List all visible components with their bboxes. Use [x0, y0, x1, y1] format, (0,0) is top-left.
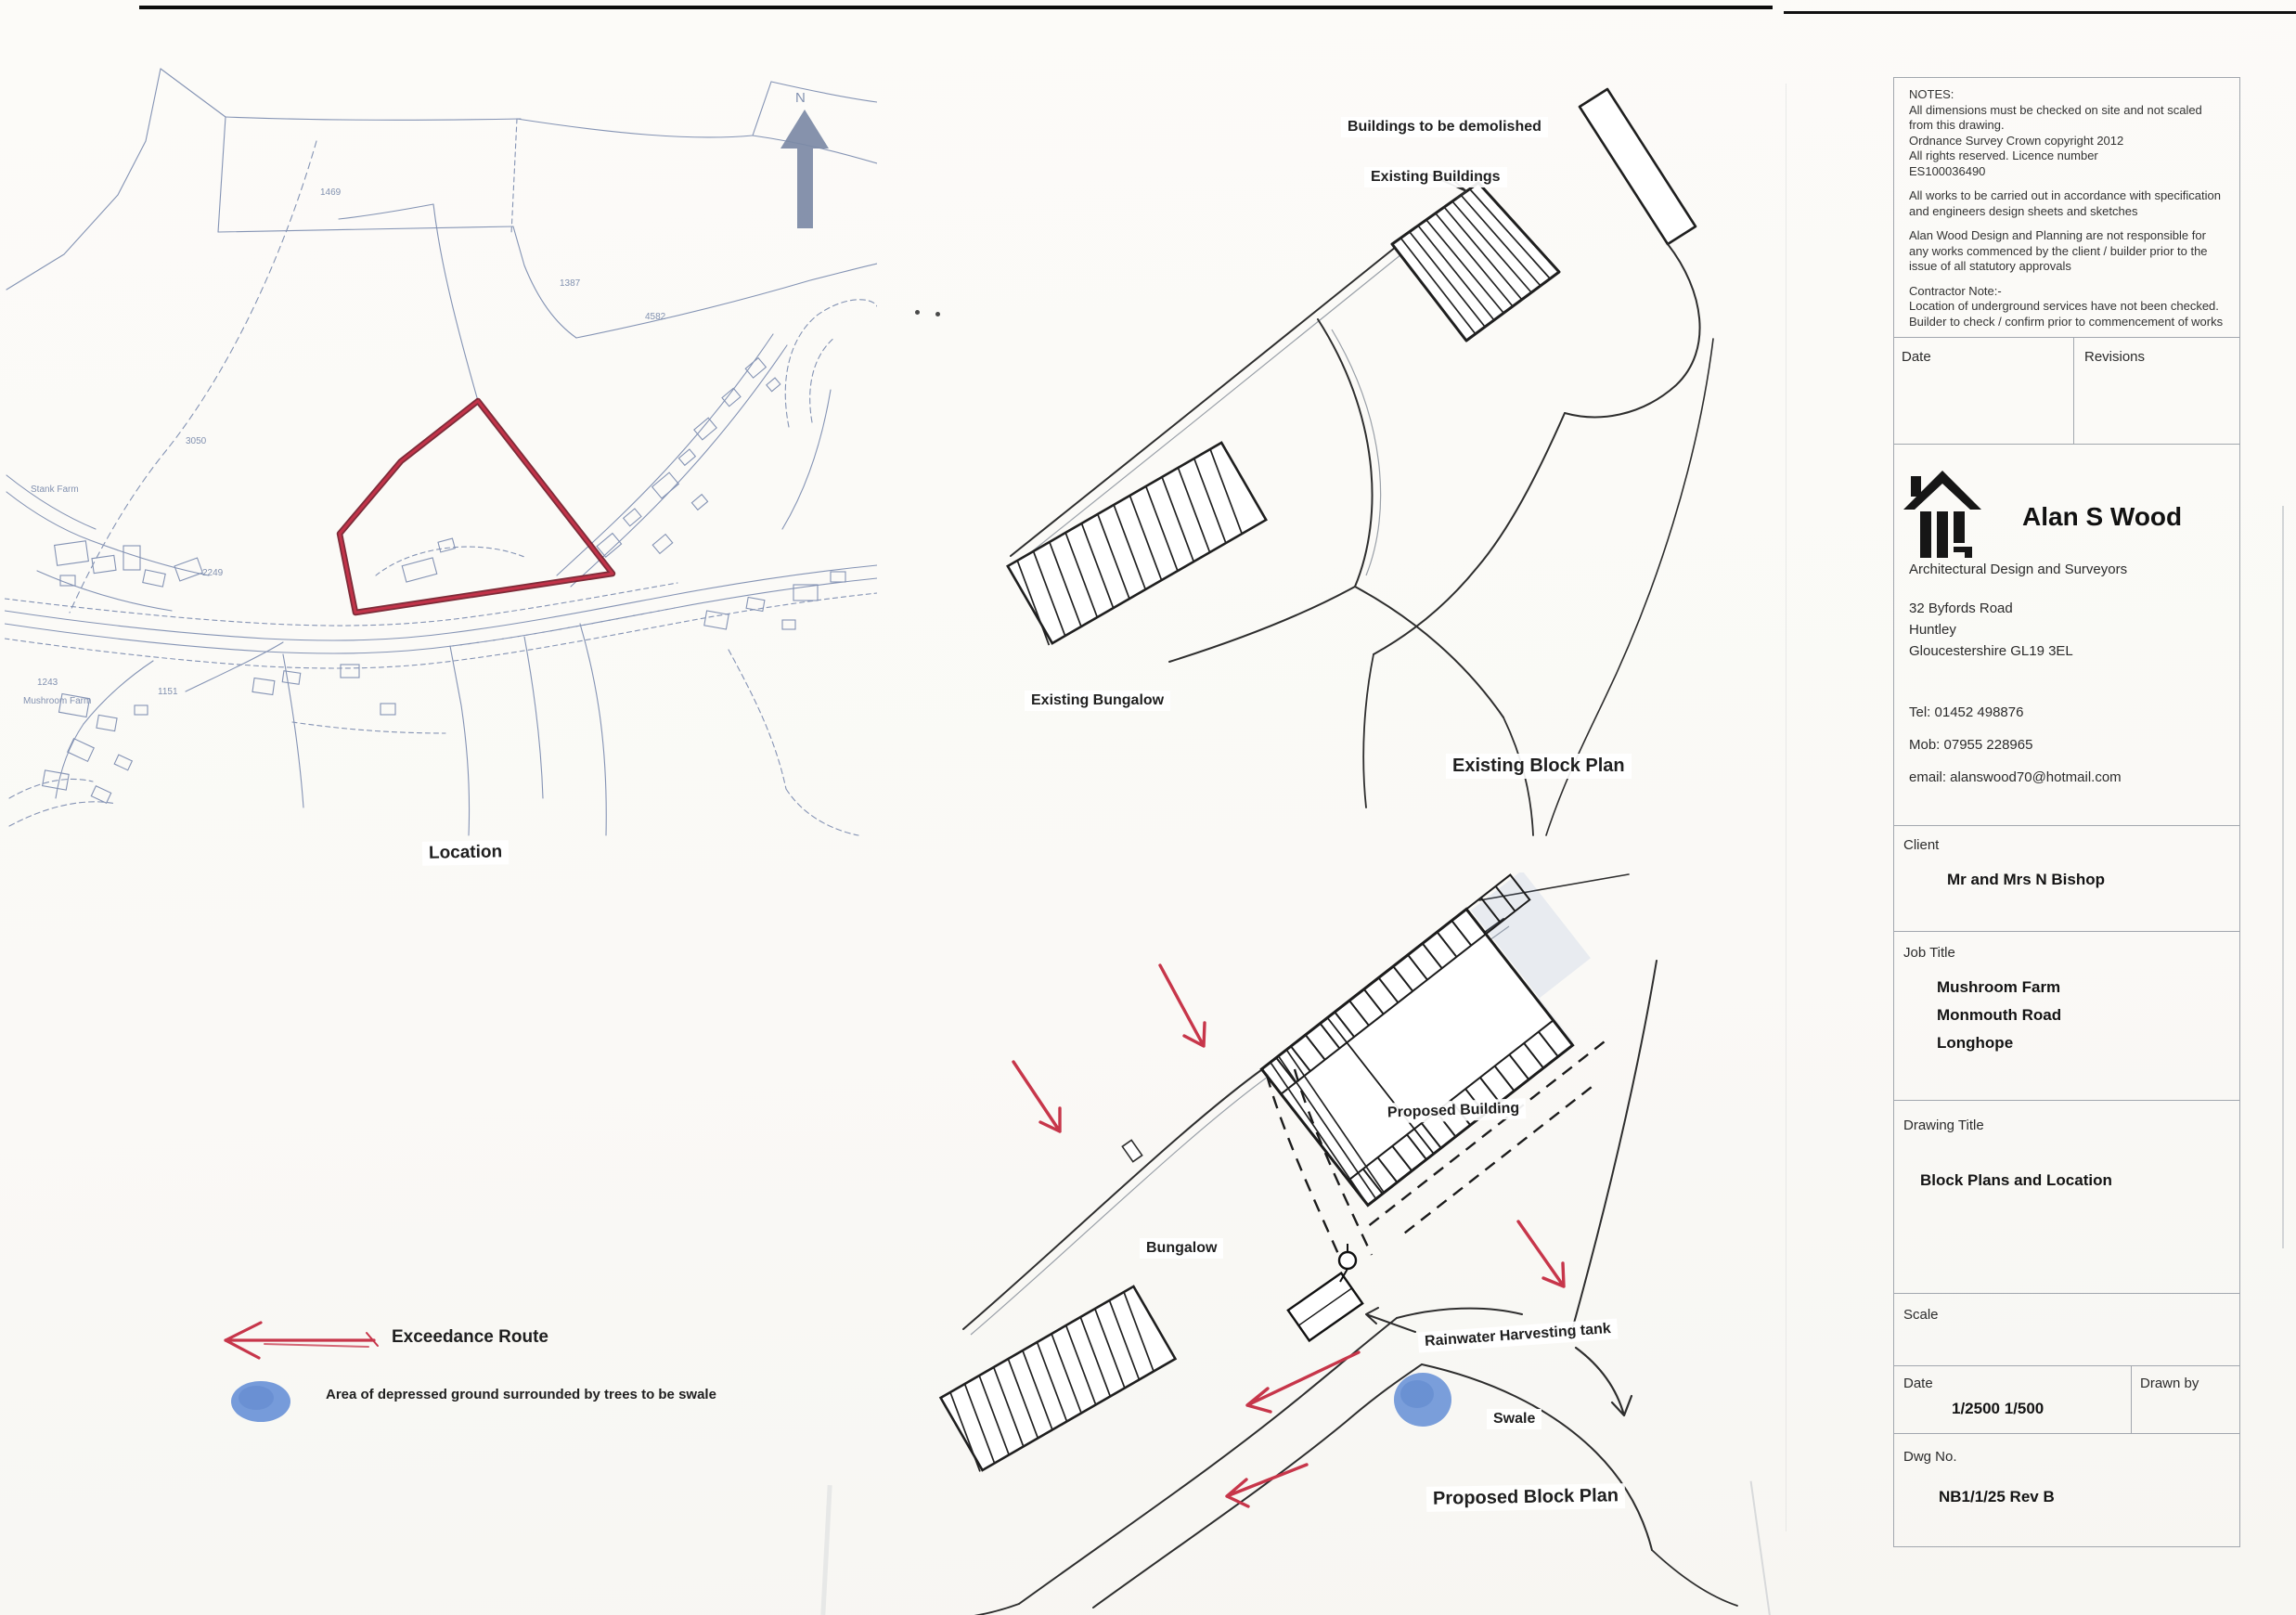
location-map-title: Location [422, 840, 510, 866]
rainwater-tank-shape [1288, 1273, 1362, 1341]
farm-name-label: Stank Farm [31, 484, 79, 495]
parcel-number: 1151 [158, 687, 178, 697]
date-drawn-section: Date 1/2500 1/500 Drawn by [1894, 1365, 2239, 1433]
date-header-label: Date [1902, 349, 1931, 365]
scan-smudge [820, 1485, 832, 1615]
notes-line: ES100036490 [1909, 164, 2225, 180]
existing-buildings-shape [1392, 183, 1559, 341]
parcel-number: 1243 [37, 678, 58, 688]
scan-top-edge-right [1784, 11, 2296, 14]
parcel-number: 1469 [320, 187, 342, 198]
scale-section: Scale [1894, 1293, 2239, 1365]
title-block: NOTES: All dimensions must be checked on… [1893, 77, 2240, 1547]
company-address-line: Huntley [1909, 622, 1956, 638]
drawing-sheet: N 1469 1387 4582 3050 2249 1151 1243 Sta… [0, 0, 2296, 1615]
site-boundary [340, 401, 613, 613]
notes-line: All works to be carried out in accordanc… [1909, 188, 2225, 219]
existing-bungalow-label: Existing Bungalow [1025, 691, 1170, 711]
depressed-ground-icon [228, 1379, 293, 1426]
notes-line: Location of underground services have no… [1909, 299, 2225, 329]
parcel-number: 4582 [645, 312, 666, 322]
map-village-buildings [597, 358, 780, 558]
dwg-no-label: Dwg No. [1903, 1449, 1957, 1465]
exceedance-route-label: Exceedance Route [385, 1325, 555, 1350]
demolish-label: Buildings to be demolished [1341, 117, 1548, 137]
revisions-section: Date Revisions [1894, 337, 2239, 444]
drawing-title-section: Drawing Title Block Plans and Location [1894, 1100, 2239, 1293]
company-address-line: Gloucestershire GL19 3EL [1909, 643, 2073, 659]
client-label: Client [1903, 837, 1939, 853]
notes-line: Alan Wood Design and Planning are not re… [1909, 228, 2225, 275]
flow-arrow [1576, 1348, 1632, 1415]
proposed-plan-title: Proposed Block Plan [1426, 1483, 1626, 1512]
exceedance-arrow-icon [209, 1316, 381, 1370]
company-name: Alan S Wood [2022, 502, 2182, 532]
depressed-ground-label: Area of depressed ground surrounded by t… [319, 1385, 723, 1404]
scale-label: Scale [1903, 1307, 1939, 1323]
company-email: email: alanswood70@hotmail.com [1909, 769, 2122, 785]
farm-name-label: Mushroom Farm [23, 696, 91, 706]
north-label: N [795, 90, 806, 106]
boundary-gate [1122, 1140, 1142, 1161]
proposed-block-plan [909, 872, 1800, 1615]
scan-paper-edge [2282, 506, 2284, 1248]
job-title-line: Mushroom Farm [1937, 978, 2060, 997]
parcel-number: 1387 [560, 278, 581, 289]
location-map: N 1469 1387 4582 3050 2249 1151 1243 Sta… [5, 56, 877, 854]
swale-label: Swale [1487, 1409, 1541, 1429]
company-mob: Mob: 07955 228965 [1909, 737, 2032, 753]
client-value: Mr and Mrs N Bishop [1947, 871, 2105, 889]
company-address-line: 32 Byfords Road [1909, 601, 2013, 616]
job-title-line: Longhope [1937, 1034, 2013, 1053]
company-tagline: Architectural Design and Surveyors [1909, 562, 2127, 577]
demolish-building-shape [1580, 89, 1696, 244]
notes-line: All rights reserved. Licence number [1909, 149, 2225, 164]
parcel-number: 2249 [202, 568, 224, 578]
job-title-label: Job Title [1903, 945, 1955, 961]
client-section: Client Mr and Mrs N Bishop [1894, 825, 2239, 931]
notes-line: Ordnance Survey Crown copyright 2012 [1909, 134, 2225, 149]
bungalow-shape [938, 1286, 1175, 1471]
company-section: Alan S Wood Architectural Design and Sur… [1894, 444, 2239, 825]
house-logo-icon [1903, 469, 1981, 560]
drawing-title-value: Block Plans and Location [1920, 1171, 2112, 1190]
north-arrow-icon [780, 110, 829, 228]
company-tel: Tel: 01452 498876 [1909, 704, 2023, 720]
revisions-header-label: Revisions [2084, 349, 2145, 365]
dwg-no-value: NB1/1/25 Rev B [1939, 1488, 2055, 1506]
existing-buildings-label: Existing Buildings [1364, 167, 1507, 187]
existing-plan-title: Existing Block Plan [1446, 754, 1632, 779]
swale-marker [1394, 1373, 1451, 1427]
notes-line: Contractor Note:- [1909, 284, 2225, 300]
dwg-no-section: Dwg No. NB1/1/25 Rev B [1894, 1433, 2239, 1548]
notes-section: NOTES: All dimensions must be checked on… [1894, 78, 2239, 337]
map-farm-buildings [55, 541, 203, 587]
scan-top-edge-left [139, 6, 1773, 9]
date-value: 1/2500 1/500 [1952, 1400, 2044, 1418]
parcel-number: 3050 [186, 436, 207, 446]
job-title-section: Job Title Mushroom Farm Monmouth Road Lo… [1894, 931, 2239, 1100]
job-title-line: Monmouth Road [1937, 1006, 2061, 1025]
date-label: Date [1903, 1376, 1933, 1391]
proposed-building-shape [1253, 872, 1654, 1247]
existing-block-plan [909, 51, 1791, 849]
bungalow-label: Bungalow [1140, 1238, 1223, 1259]
drawn-by-label: Drawn by [2140, 1376, 2199, 1391]
drawing-title-label: Drawing Title [1903, 1118, 1984, 1133]
map-roadside-buildings [252, 572, 845, 715]
notes-heading: NOTES: [1909, 87, 2225, 103]
notes-line: All dimensions must be checked on site a… [1909, 103, 2225, 134]
existing-bungalow-shape [1004, 443, 1266, 645]
